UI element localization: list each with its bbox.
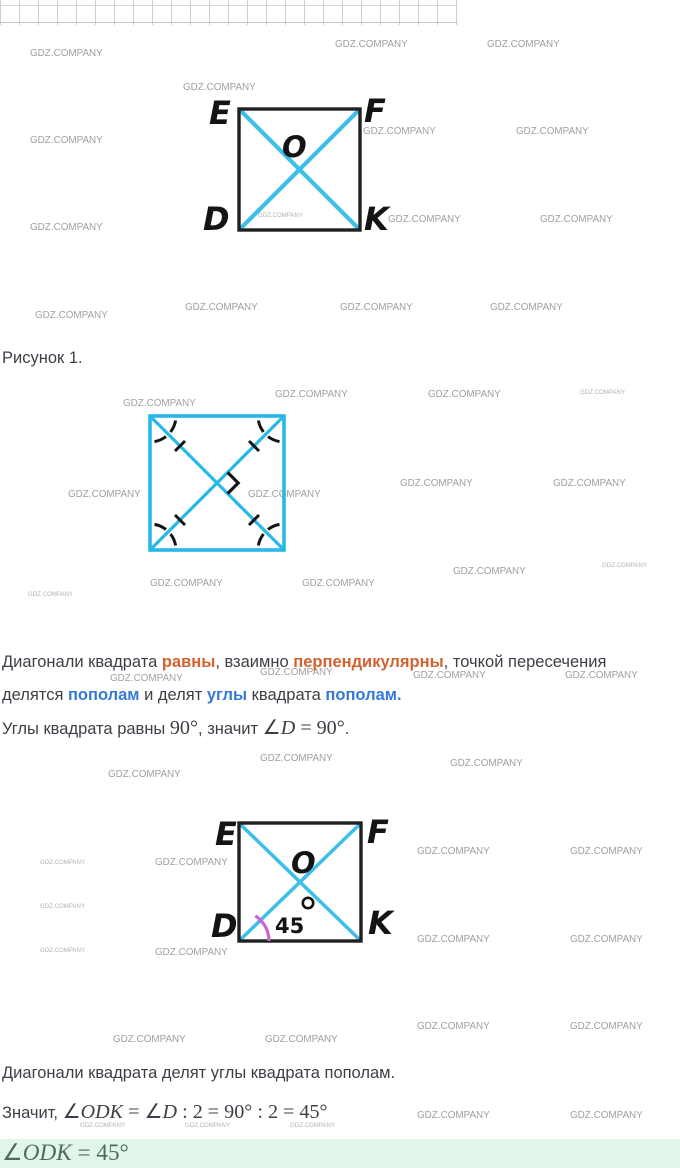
text-segment: Диагонали квадрата <box>2 653 162 671</box>
right-angle-mark <box>228 472 239 493</box>
answer-formula: ∠ODK = 45° <box>2 1139 129 1168</box>
angle-arc-45 <box>255 916 269 941</box>
page: GDZ.COMPANYGDZ.COMPANYGDZ.COMPANYGDZ.COM… <box>0 0 680 1168</box>
answer-highlight-band: ∠ODK = 45° <box>0 1139 680 1168</box>
watermark: GDZ.COMPANY <box>30 221 103 233</box>
text-segment: равны <box>162 653 215 671</box>
text-segment: перпендикулярны <box>293 653 443 671</box>
watermark: GDZ.COMPANY <box>400 477 473 489</box>
watermark: GDZ.COMPANY <box>113 1033 186 1045</box>
vertex-label-d: D <box>203 200 230 238</box>
vertex-label-k: K <box>368 904 395 942</box>
watermark: GDZ.COMPANY <box>487 38 560 50</box>
watermark: GDZ.COMPANY <box>185 301 258 313</box>
graph-paper-strip <box>0 0 458 25</box>
degree-symbol-icon <box>303 898 313 908</box>
text-segment: D <box>281 717 296 739</box>
watermark: GDZ.COMPANY <box>570 1020 643 1032</box>
watermark: GDZ.COMPANY <box>602 562 647 569</box>
watermark: GDZ.COMPANY <box>453 565 526 577</box>
text-segment: , значит <box>198 720 263 738</box>
text-segment: и делят <box>140 686 207 704</box>
line-square-angles: Углы квадрата равны 90°, значит ∠D = 90°… <box>2 712 674 746</box>
arc-tl-1 <box>171 421 176 433</box>
watermark: GDZ.COMPANY <box>450 757 523 769</box>
vertex-label-f: F <box>367 813 389 851</box>
figure-1-caption: Рисунок 1. <box>2 342 83 375</box>
watermark: GDZ.COMPANY <box>340 301 413 313</box>
watermark: GDZ.COMPANY <box>335 38 408 50</box>
line-therefore-formula: Значит, ∠ODK = ∠D : 2 = 90° : 2 = 45° <box>2 1096 674 1130</box>
watermark: GDZ.COMPANY <box>417 845 490 857</box>
arc-bl-1 <box>171 534 176 546</box>
line-diagonals-bisect: Диагонали квадрата делят углы квадрата п… <box>2 1057 674 1090</box>
watermark: GDZ.COMPANY <box>40 859 85 866</box>
watermark: GDZ.COMPANY <box>516 125 589 137</box>
watermark: GDZ.COMPANY <box>570 845 643 857</box>
text-segment: ODK <box>23 1140 72 1166</box>
text-segment: 90° <box>170 717 198 739</box>
watermark: GDZ.COMPANY <box>417 933 490 945</box>
text-segment: = 90° <box>295 717 345 739</box>
vertex-label-d: D <box>211 907 238 945</box>
watermark: GDZ.COMPANY <box>260 752 333 764</box>
text-segment: пополам. <box>325 686 401 704</box>
watermark: GDZ.COMPANY <box>28 591 73 598</box>
figure-1-square-efdk: E F D K O <box>185 78 415 243</box>
vertex-label-e: E <box>209 94 231 132</box>
arc-tr-2 <box>258 421 263 433</box>
vertex-label-e: E <box>215 815 237 853</box>
watermark: GDZ.COMPANY <box>428 388 501 400</box>
text-segment: . <box>345 720 350 738</box>
watermark: GDZ.COMPANY <box>40 903 85 910</box>
center-label-o: O <box>282 130 307 164</box>
text-segment: Углы квадрата равны <box>2 720 170 738</box>
watermark: GDZ.COMPANY <box>490 301 563 313</box>
text-segment: пополам <box>68 686 140 704</box>
text-segment: : 2 = 90° : 2 = 45° <box>177 1101 328 1123</box>
vertex-label-f: F <box>364 92 386 130</box>
watermark: GDZ.COMPANY <box>265 1033 338 1045</box>
text-segment: ∠ <box>63 1101 81 1123</box>
watermark: GDZ.COMPANY <box>580 389 625 396</box>
angle-value-45: 45 <box>275 914 304 938</box>
text-segment: D <box>163 1101 178 1123</box>
watermark: GDZ.COMPANY <box>150 577 223 589</box>
arc-br-1 <box>258 534 263 546</box>
watermark: GDZ.COMPANY <box>30 134 103 146</box>
watermark: GDZ.COMPANY <box>30 47 103 59</box>
text-segment: ∠ <box>2 1140 23 1166</box>
text-segment: Значит, <box>2 1104 63 1122</box>
text-segment: углы <box>207 686 247 704</box>
arc-br-2 <box>268 524 280 529</box>
text-segment: , взаимно <box>215 653 293 671</box>
figure-2-square-marked <box>145 408 295 558</box>
text-segment: делятся <box>2 686 68 704</box>
vertex-label-k: K <box>364 200 391 238</box>
center-label-o: O <box>291 846 316 880</box>
text-segment: = ∠ <box>123 1101 162 1123</box>
figure-3-square-45deg: E F D K O 45 <box>205 790 405 960</box>
text-segment: , точкой пересечения <box>444 653 607 671</box>
watermark: GDZ.COMPANY <box>35 309 108 321</box>
watermark: GDZ.COMPANY <box>68 488 141 500</box>
watermark: GDZ.COMPANY <box>540 213 613 225</box>
text-segment: квадрата <box>247 686 325 704</box>
watermark: GDZ.COMPANY <box>553 477 626 489</box>
text-segment: ∠ <box>263 717 281 739</box>
arc-tl-2 <box>155 437 167 442</box>
watermark: GDZ.COMPANY <box>417 1020 490 1032</box>
text-segment: ODK <box>81 1101 123 1123</box>
watermark: GDZ.COMPANY <box>108 768 181 780</box>
watermark: GDZ.COMPANY <box>275 388 348 400</box>
arc-tr-1 <box>268 437 280 442</box>
paragraph-diagonal-properties: Диагонали квадрата равны, взаимно перпен… <box>2 646 674 712</box>
watermark: GDZ.COMPANY <box>302 577 375 589</box>
watermark: GDZ.COMPANY <box>570 933 643 945</box>
watermark: GDZ.COMPANY <box>40 947 85 954</box>
arc-bl-2 <box>155 524 167 529</box>
text-segment: = 45° <box>72 1140 129 1166</box>
